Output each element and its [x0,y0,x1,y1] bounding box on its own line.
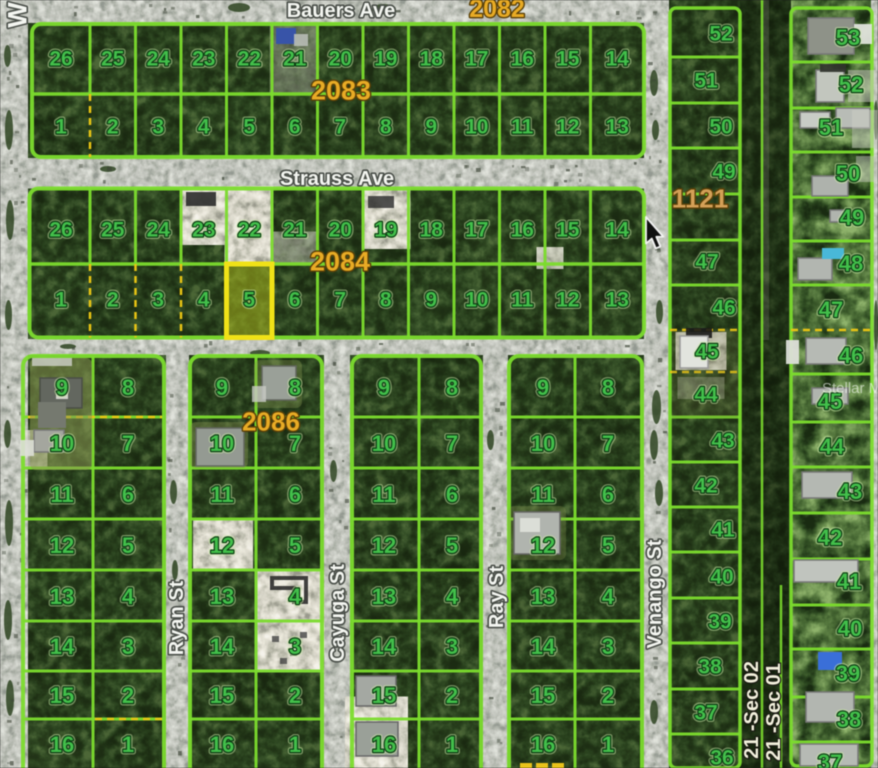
svg-text:41: 41 [711,519,735,542]
svg-text:4: 4 [198,289,210,312]
svg-text:26: 26 [49,219,72,242]
svg-text:12: 12 [372,533,396,558]
svg-text:8: 8 [602,375,614,400]
svg-text:7: 7 [446,431,458,456]
svg-text:5: 5 [289,533,301,558]
svg-text:2: 2 [289,683,301,708]
svg-text:23: 23 [192,219,215,242]
svg-text:13: 13 [210,584,234,609]
svg-text:5: 5 [122,533,134,558]
svg-text:14: 14 [50,634,75,659]
svg-text:25: 25 [101,48,125,71]
svg-text:2: 2 [446,683,458,708]
svg-text:3: 3 [602,634,614,659]
svg-text:15: 15 [531,683,555,708]
svg-text:44: 44 [820,434,845,459]
svg-text:5: 5 [602,533,614,558]
svg-text:20: 20 [329,48,352,71]
svg-text:40: 40 [838,616,862,641]
svg-text:25: 25 [101,219,125,242]
svg-text:14: 14 [372,634,397,659]
svg-text:6: 6 [446,482,458,507]
svg-text:44: 44 [694,384,718,407]
svg-text:6: 6 [122,482,134,507]
svg-text:12: 12 [50,533,74,558]
svg-text:11: 11 [210,482,233,507]
svg-text:9: 9 [425,289,437,312]
svg-text:49: 49 [840,205,864,230]
svg-text:8: 8 [380,289,392,312]
svg-text:15: 15 [556,219,580,242]
svg-text:7: 7 [122,431,134,456]
svg-text:16: 16 [511,48,534,71]
svg-text:5: 5 [446,533,458,558]
svg-text:5: 5 [243,289,255,312]
svg-text:Stellar MLS: Stellar MLS [822,380,878,397]
svg-text:6: 6 [289,289,301,312]
svg-text:14: 14 [210,634,235,659]
svg-text:3: 3 [122,634,134,659]
svg-text:2: 2 [602,683,614,708]
svg-text:Strauss Ave: Strauss Ave [280,168,394,190]
svg-text:4: 4 [122,584,135,609]
svg-text:42: 42 [694,475,717,498]
svg-text:13: 13 [50,584,74,609]
svg-text:43: 43 [838,479,862,504]
svg-text:16: 16 [531,732,555,757]
svg-text:10: 10 [50,431,74,456]
svg-text:38: 38 [698,656,722,679]
svg-text:45: 45 [695,341,719,364]
svg-text:12: 12 [556,116,579,139]
svg-text:39: 39 [836,661,860,686]
svg-text:15: 15 [50,683,74,708]
svg-text:15: 15 [372,683,396,708]
svg-text:1: 1 [602,732,614,757]
svg-text:47: 47 [695,251,718,274]
svg-text:4: 4 [446,584,459,609]
svg-text:4: 4 [602,584,615,609]
svg-text:14: 14 [606,48,630,71]
svg-text:10: 10 [465,289,488,312]
svg-text:42: 42 [818,525,842,550]
svg-text:1: 1 [289,732,301,757]
svg-text:2082: 2082 [469,0,525,23]
svg-text:Cayuga St: Cayuga St [327,564,349,662]
svg-text:41: 41 [837,569,861,594]
svg-text:9: 9 [537,375,549,400]
svg-text:7: 7 [602,431,614,456]
svg-text:2: 2 [107,289,119,312]
svg-text:47: 47 [819,297,843,322]
svg-text:38: 38 [837,707,861,732]
svg-text:36: 36 [710,747,733,768]
svg-text:10: 10 [210,431,234,456]
svg-text:19: 19 [374,48,397,71]
svg-text:11: 11 [531,482,554,507]
svg-text:49: 49 [712,161,735,184]
svg-text:53: 53 [836,25,860,50]
svg-text:11: 11 [511,289,534,312]
svg-text:13: 13 [531,584,555,609]
svg-text:14: 14 [606,219,630,242]
svg-text:16: 16 [372,732,396,757]
svg-text:Ray St: Ray St [486,566,508,629]
svg-text:3: 3 [446,634,458,659]
svg-text:51: 51 [819,115,843,140]
svg-text:3: 3 [289,634,301,659]
svg-text:8: 8 [380,116,392,139]
svg-text:48: 48 [839,251,863,276]
svg-text:2086: 2086 [242,406,300,436]
svg-text:50: 50 [709,116,732,139]
svg-text:18: 18 [420,219,444,242]
svg-text:10: 10 [531,431,555,456]
svg-text:50: 50 [836,161,860,186]
svg-text:40: 40 [710,566,733,589]
svg-text:18: 18 [420,48,444,71]
svg-text:10: 10 [465,116,488,139]
svg-text:19: 19 [374,219,397,242]
svg-text:1: 1 [446,732,458,757]
svg-text:9: 9 [378,375,390,400]
svg-text:24: 24 [147,219,171,242]
svg-text:23: 23 [192,48,215,71]
svg-text:12: 12 [556,289,579,312]
svg-text:13: 13 [606,116,629,139]
svg-text:8: 8 [122,375,134,400]
svg-text:10: 10 [372,431,396,456]
svg-text:20: 20 [329,219,352,242]
svg-text:11: 11 [372,482,395,507]
svg-text:2: 2 [122,683,134,708]
svg-text:Venango St: Venango St [644,539,666,648]
svg-text:22: 22 [238,48,261,71]
svg-text:2084: 2084 [310,247,370,277]
svg-text:21: 21 [283,219,307,242]
svg-text:39: 39 [708,611,731,634]
svg-text:24: 24 [147,48,171,71]
svg-text:7: 7 [334,116,346,139]
svg-text:21 -Sec 01: 21 -Sec 01 [763,663,785,761]
svg-text:16: 16 [511,219,534,242]
svg-text:37: 37 [694,702,717,725]
svg-text:14: 14 [531,634,556,659]
svg-text:3: 3 [152,116,164,139]
svg-text:6: 6 [289,482,301,507]
svg-text:2: 2 [107,116,119,139]
svg-text:1: 1 [55,116,67,139]
svg-text:W: W [3,2,33,28]
svg-text:9: 9 [56,375,68,400]
svg-text:51: 51 [694,70,718,93]
svg-text:12: 12 [210,533,234,558]
svg-text:13: 13 [372,584,396,609]
svg-text:Bauers Ave: Bauers Ave [287,0,396,22]
svg-text:11: 11 [50,482,73,507]
svg-text:13: 13 [606,289,629,312]
svg-text:9: 9 [216,375,228,400]
svg-text:15: 15 [556,48,580,71]
svg-text:8: 8 [289,375,301,400]
svg-text:12: 12 [531,533,555,558]
svg-text:6: 6 [602,482,614,507]
svg-text:17: 17 [465,219,488,242]
svg-text:2083: 2083 [311,76,371,106]
svg-text:15: 15 [210,683,234,708]
svg-text:21 -Sec 02: 21 -Sec 02 [741,661,763,759]
svg-text:43: 43 [711,430,734,453]
svg-text:Ryan St: Ryan St [166,580,188,655]
svg-text:16: 16 [50,732,74,757]
svg-text:1121: 1121 [672,183,728,213]
svg-text:26: 26 [49,48,72,71]
svg-text:8: 8 [446,375,458,400]
svg-text:4: 4 [289,584,302,609]
svg-text:7: 7 [334,289,346,312]
svg-text:1: 1 [122,732,134,757]
svg-text:52: 52 [839,72,863,97]
svg-text:5: 5 [243,116,255,139]
svg-text:37: 37 [818,750,842,768]
svg-text:22: 22 [238,219,261,242]
svg-text:4: 4 [198,116,210,139]
svg-text:52: 52 [709,23,732,46]
svg-text:46: 46 [712,297,735,320]
svg-text:17: 17 [465,48,488,71]
svg-text:9: 9 [425,116,437,139]
svg-text:46: 46 [839,343,863,368]
svg-text:1: 1 [55,289,67,312]
svg-text:16: 16 [210,732,234,757]
svg-text:11: 11 [511,116,534,139]
svg-text:21: 21 [283,48,307,71]
svg-text:3: 3 [152,289,164,312]
svg-text:6: 6 [289,116,301,139]
